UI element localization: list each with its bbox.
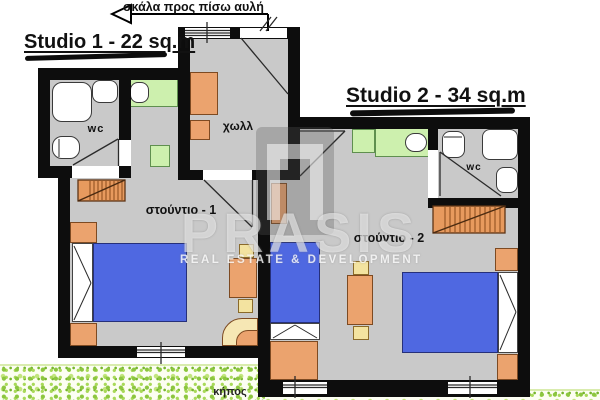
hall-cabinet-large bbox=[190, 72, 218, 115]
garden-label: κήπος bbox=[205, 386, 255, 398]
stairs-arrow-label: σκάλα προς πίσω αυλή bbox=[123, 0, 263, 14]
studio1-bed-pillow bbox=[72, 243, 93, 322]
floor-plan: κήπος bbox=[0, 0, 600, 400]
wc2-wall-top bbox=[428, 117, 530, 129]
studio2-wall-right bbox=[518, 117, 530, 397]
studio1-studio2-shared-wall bbox=[258, 170, 270, 397]
studio1-corner-bench-seat bbox=[236, 330, 258, 346]
wc1-shower bbox=[52, 82, 92, 122]
studio2-window-left bbox=[283, 382, 327, 394]
hall-door-opening bbox=[240, 28, 287, 38]
studio2-kitchen-sink bbox=[405, 133, 427, 152]
wc1-toilet bbox=[52, 136, 80, 159]
studio2-room-label: στούντιο - 2 bbox=[349, 231, 429, 245]
wc2-wall-bottom bbox=[428, 198, 530, 208]
studio2-single-bed-pillow bbox=[270, 323, 320, 340]
hall-wall-right bbox=[288, 27, 300, 180]
wc1-sink bbox=[92, 80, 118, 103]
studio1-chair-bottom bbox=[238, 299, 253, 313]
studio2-bed-foot-dresser bbox=[270, 341, 318, 380]
studio2-nightstand-bottom bbox=[497, 354, 518, 380]
studio2-chair-bottom bbox=[353, 326, 369, 340]
hall-cabinet-small bbox=[190, 120, 210, 140]
wc2-door-opening bbox=[428, 150, 438, 198]
studio2-table bbox=[347, 275, 373, 325]
studio1-wall-top bbox=[38, 68, 190, 80]
studio1-table bbox=[229, 258, 257, 298]
studio2-window-right bbox=[448, 382, 497, 394]
studio1-nightstand-bottom bbox=[70, 323, 97, 346]
studio1-wall-left bbox=[58, 166, 70, 358]
studio2-double-bed bbox=[402, 272, 498, 353]
studio2-wall-top bbox=[288, 117, 430, 129]
studio1-room-label: στούντιο - 1 bbox=[141, 203, 221, 217]
studio2-single-bed bbox=[270, 242, 320, 323]
studio2-kitchen-unit bbox=[352, 129, 375, 153]
hall-label: χωλλ bbox=[213, 119, 263, 133]
studio2-double-bed-pillow bbox=[498, 272, 518, 353]
studio1-kitchen-unit bbox=[150, 145, 170, 167]
studio2-title-underline bbox=[350, 108, 515, 117]
wc1-door-opening bbox=[72, 166, 119, 178]
wc2-sink bbox=[496, 167, 518, 193]
studio1-nightstand-top bbox=[70, 222, 97, 243]
studio1-kitchen-sink bbox=[130, 82, 149, 103]
studio2-nightstand-top bbox=[495, 248, 518, 271]
wc1-wall-right bbox=[119, 68, 131, 140]
hall-bottom-door-opening bbox=[203, 170, 252, 180]
wc1-wall-left bbox=[38, 68, 50, 178]
studio2-title: Studio 2 - 34 sq.m bbox=[346, 84, 526, 108]
wc2-label: wc bbox=[458, 162, 490, 173]
studio1-window bbox=[137, 347, 185, 357]
studio2-wall-cabinet bbox=[271, 183, 287, 224]
wc1-label: wc bbox=[80, 123, 112, 135]
wc2-shower bbox=[482, 129, 518, 160]
studio2-chair-top bbox=[353, 261, 369, 275]
studio1-bed bbox=[93, 243, 187, 322]
wc2-toilet bbox=[442, 131, 465, 158]
studio1-title: Studio 1 - 22 sq.m bbox=[24, 31, 195, 54]
studio1-chair-top bbox=[239, 244, 254, 258]
